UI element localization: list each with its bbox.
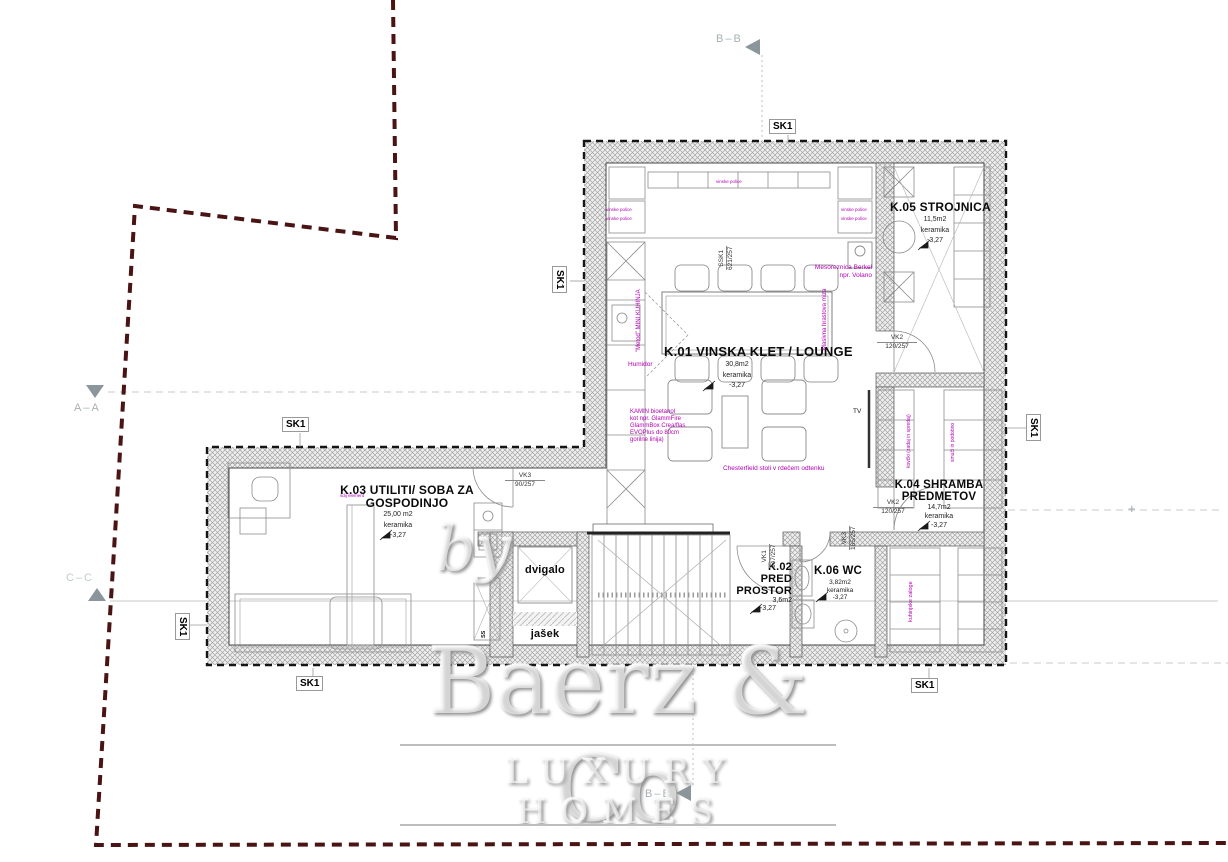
door-label-vk2b: VK2 120/257: [873, 499, 913, 516]
note-chesterfield: Chesterfield stoli v rdečem odtenku: [723, 465, 825, 473]
note-berkel-line2: npr. Volano: [790, 272, 872, 280]
note-suitcases: kovčki (zadaj in spredaj): [906, 414, 914, 468]
room-k05-finish: keramika: [900, 226, 970, 237]
sk1-label-bottom-left: SK1: [296, 676, 323, 691]
room-k01-finish: keramika: [697, 371, 777, 382]
room-k03-title-line2: GOSPODINJO: [337, 497, 477, 510]
note-humidor: Humidor: [628, 361, 653, 369]
room-k05-level: -3,27: [900, 236, 970, 247]
door-label-vk3a: VK3 90/257: [505, 472, 545, 489]
sk1-label-top: SK1: [769, 119, 796, 134]
room-k03-details: 25,00 m2 keramika -3,27: [368, 510, 428, 542]
room-k05-area: 11,5m2: [900, 215, 970, 226]
door-label-vk1: VK1 147/257: [761, 545, 778, 569]
room-k02-title-line3: PROSTOR: [714, 585, 792, 597]
room-k06-level: -3,27: [810, 594, 870, 602]
room-k01-details: 30,8m2 keramika -3,27: [697, 360, 777, 392]
note-shelf-2: vinske police: [606, 216, 632, 221]
section-aa-arrow-icon: [86, 385, 104, 398]
grid-cross-marker: +: [1128, 501, 1136, 516]
door-vk1-code: VK1: [761, 545, 770, 569]
door-vk2a-code: VK2: [877, 334, 917, 343]
sk1-label-left-edge: SK1: [175, 613, 190, 640]
door-vk2a-size: 120/257: [877, 343, 917, 351]
door-label-vk2a: VK2 120/257: [877, 334, 917, 351]
door-ssk1-code: SSK1: [718, 247, 727, 271]
door-vk3b-size: 165/257: [850, 527, 858, 551]
room-k04-level: -3,27: [887, 521, 991, 530]
sk1-label-mid-vertical: SK1: [552, 266, 567, 293]
room-k06-title: K.06 WC: [798, 565, 878, 577]
watermark-by: by: [436, 512, 511, 585]
note-kamin-line1: KAMIN bioetanol: [630, 409, 685, 416]
room-k02-area: 3,6m2: [714, 597, 792, 604]
watermark-rule-top: [400, 744, 836, 746]
door-vk3a-size: 90/257: [505, 481, 545, 489]
room-k03-area: 25,00 m2: [368, 510, 428, 521]
note-skis: smuči in podobno: [950, 423, 958, 462]
mini-kitchen: [607, 242, 688, 530]
room-k02-title-line2: PRED: [714, 573, 792, 585]
jasek-shaft: [513, 612, 577, 626]
room-k02-title-line1: K.02: [714, 561, 792, 573]
room-k01-area: 30,8m2: [697, 360, 777, 371]
lounge-seating: [668, 380, 806, 461]
room-k01-level: -3,27: [697, 381, 777, 392]
door-vk2b-size: 120/257: [873, 508, 913, 516]
wine-shelves: [607, 167, 876, 238]
door-vk1-size: 147/257: [770, 545, 778, 569]
section-cc-arrow-icon: [88, 588, 106, 601]
note-kamin: KAMIN bioetanol kot npr. GlammFire Glamm…: [630, 409, 685, 444]
room-k06-area: 3,82m2: [810, 579, 870, 587]
door-ssk1-size: 621/257: [727, 247, 735, 271]
note-kamin-line3: GlammBox Crea/flas: [630, 423, 685, 430]
room-k04-title-line1: K.04 SHRAMBA: [887, 479, 991, 491]
note-berkel: Mesoreznica Berkel npr. Volano: [790, 264, 872, 279]
tv-label: TV: [853, 408, 861, 415]
room-k05-title: K.05 STROJNICA: [890, 200, 991, 214]
sk1-label-right-edge: SK1: [1026, 414, 1041, 441]
floor-plan-canvas: B–B B–B A–A C–C + SK1 SK1 SK1 SK1 SK1 SK…: [0, 0, 1228, 862]
watermark-tagline: LUXURY HOMES: [392, 752, 852, 832]
note-shelf-1: vinske police: [606, 207, 632, 212]
sk1-label-bottom-right: SK1: [911, 678, 938, 693]
room-k06-details: 3,82m2 keramika -3,27: [810, 579, 870, 602]
section-cc-label: C–C: [66, 572, 94, 584]
door-vk3a-code: VK3: [505, 472, 545, 481]
section-bb-top-label: B–B: [716, 33, 743, 45]
watermark-rule-bottom: [400, 824, 836, 826]
note-kamin-line5: gorilne linija): [630, 437, 685, 444]
room-k02-title: K.02 PRED PROSTOR 3,6m2: [714, 561, 792, 604]
note-mini-kitchen: "Metod" MINI KUHINJA: [636, 289, 644, 352]
note-table: Masivna hrastova miza: [822, 289, 830, 350]
note-shelf-top: vinske police: [716, 179, 742, 184]
room-k03-level: -3,27: [368, 531, 428, 542]
room-k06-finish: keramika: [810, 587, 870, 595]
note-kamin-line4: EVOPlus do 80cm: [630, 430, 685, 437]
room-k02-level: -3,27: [748, 604, 788, 615]
elevator: [513, 547, 577, 626]
note-supplies: kuhinjske zaloge: [908, 581, 916, 622]
room-k05-details: 11,5m2 keramika -3,27: [900, 215, 970, 247]
door-label-ssk1: SSK1 621/257: [718, 247, 735, 271]
elevator-label: dvigalo: [516, 564, 574, 576]
room-k03-finish: keramika: [368, 521, 428, 532]
section-aa-label: A–A: [74, 402, 101, 414]
door-vk3b-code: VK3: [841, 527, 850, 551]
sk1-label-leftwing: SK1: [282, 417, 309, 432]
note-berkel-line1: Mesoreznica Berkel: [790, 264, 872, 272]
note-shelf-3: vinske police: [841, 207, 867, 212]
section-bb-top-arrow-icon: [745, 39, 760, 55]
note-element: sdij element: [340, 493, 364, 498]
note-shelf-4: vinske police: [841, 216, 867, 221]
note-kamin-line2: kot npr. GlammFire: [630, 416, 685, 423]
door-label-vk3b: VK3 165/257: [841, 527, 858, 551]
door-vk2b-code: VK2: [873, 499, 913, 508]
